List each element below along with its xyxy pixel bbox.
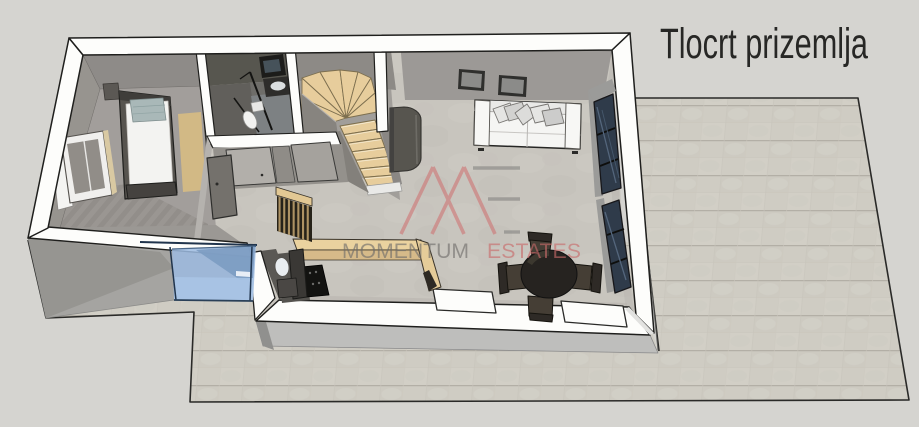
- svg-text:MOMENTUM: MOMENTUM: [342, 240, 469, 263]
- svg-text:Tlocrt prizemlja: Tlocrt prizemlja: [660, 20, 868, 68]
- svg-text:ESTATES: ESTATES: [487, 240, 581, 263]
